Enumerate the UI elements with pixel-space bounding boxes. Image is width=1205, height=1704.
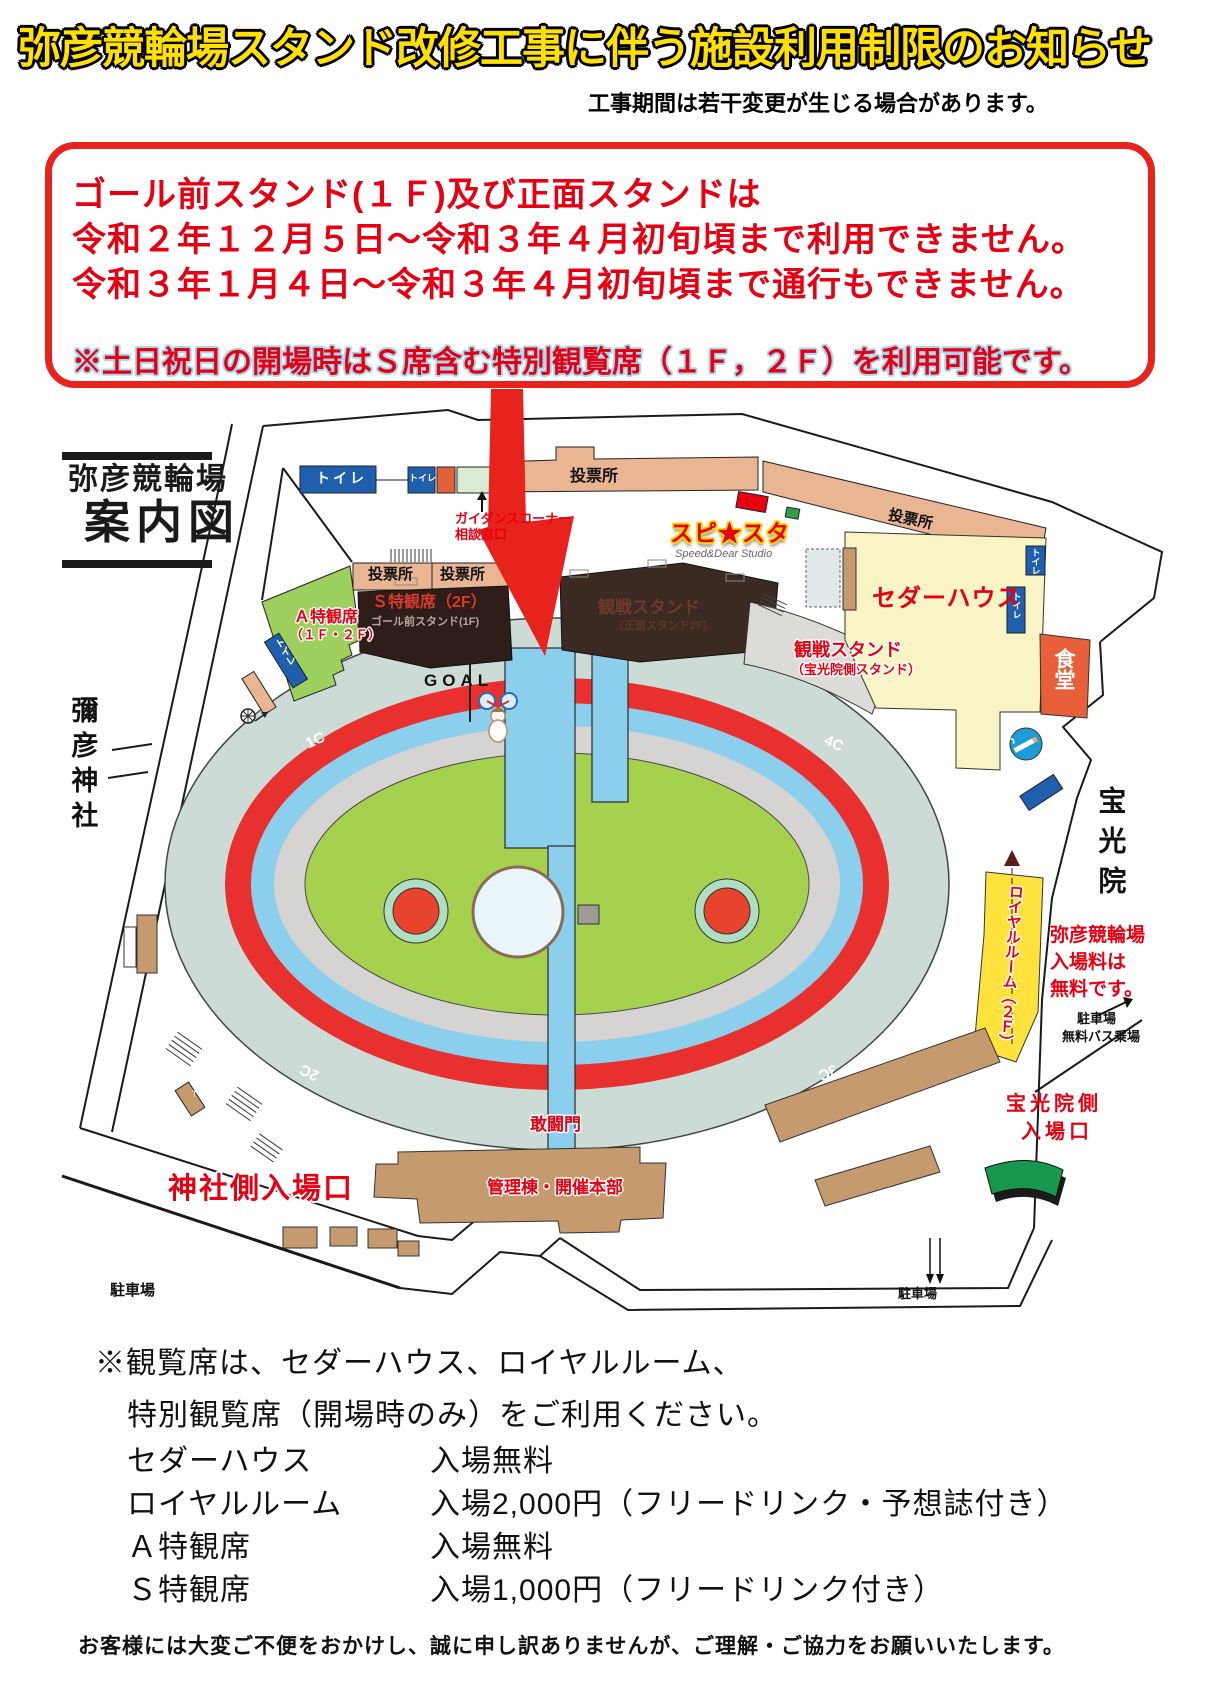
page-subtitle: 工事期間は若干変更が生じる場合があります。: [588, 86, 1048, 118]
service-building-mid: [815, 1146, 940, 1206]
shrine-entrance-label: 神社側入場口: [168, 1174, 354, 1204]
price-row-name: セダーハウス: [127, 1436, 312, 1480]
guidance-arrow: [477, 491, 487, 512]
stairs: [391, 549, 431, 562]
toilet-label-4: トイレ: [1011, 592, 1020, 619]
price-row-value: 入場1,000円（フリードリンク付き）: [430, 1565, 944, 1609]
a-seat-label: Ａ特観席: [294, 610, 358, 627]
price-row-name: Ａ特観席: [127, 1522, 251, 1566]
parking-label-right: 駐車場: [898, 1287, 937, 1301]
kanto-gate-label: 敢闘門: [530, 1116, 581, 1134]
page-title: 弥彦競輪場スタンド改修工事に伴う施設利用制限のお知らせ: [18, 14, 1194, 76]
info-heading-2: 特別観覧席（開場時のみ）をご利用ください。: [127, 1390, 778, 1434]
smoking-area-icon: [1009, 728, 1042, 760]
admission-label-2: 入場料は: [1050, 953, 1126, 973]
hokoin-entrance-label-1: 宝光院側: [1006, 1094, 1102, 1115]
admission-label-1: 弥彦競輪場: [1050, 926, 1145, 946]
price-row-value: 入場2,000円（フリードリンク・予想誌付き）: [430, 1479, 1067, 1523]
voting-office-label-2: 投票所: [368, 567, 413, 583]
goal-label: GOAL: [424, 672, 493, 690]
toilet-label-2: トイレ: [409, 474, 436, 483]
studio-logo: スピ★スタ: [670, 521, 790, 545]
map-title-line2: 案内図: [84, 498, 240, 546]
parking-arrows: [926, 1238, 944, 1284]
s-seat-sublabel: ゴール前スタンド(1F): [371, 617, 479, 629]
guidance-label-2: 相談窓口: [455, 528, 507, 542]
parking-label-left: 駐車場: [110, 1283, 155, 1299]
apology-text: お客様には大変ご不便をおかけし、誠に申し訳ありませんが、ご理解・ご協力をお願いい…: [78, 1630, 1065, 1660]
price-row-value: 入場無料: [430, 1522, 554, 1566]
reception-strip: [242, 671, 276, 714]
notice-line-1: ゴール前スタンド(１Ｆ)及び正面スタンドは: [72, 167, 762, 216]
toilet-building-6: [1020, 774, 1063, 810]
price-row-name: ロイヤルルーム: [127, 1479, 342, 1523]
a-seat-sublabel: （１Ｆ・２Ｆ）: [290, 628, 381, 642]
hokoin-stand-sublabel: （宝光院側スタンド）: [791, 663, 921, 677]
map-title-line1: 弥彦競輪場: [68, 464, 228, 496]
voting-office-label-1: 投票所: [570, 469, 618, 486]
main-stand-label: 観戦スタンド: [598, 599, 700, 617]
admin-building-label: 管理棟・開催本部: [487, 1179, 623, 1197]
restriction-notice-box: ゴール前スタンド(１Ｆ)及び正面スタンドは 令和２年１２月５日～令和３年４月初旬…: [45, 142, 1155, 388]
infield-circle-right: [695, 879, 759, 943]
hokoin-temple-label: 宝光院: [1096, 786, 1125, 906]
main-stand-sublabel: （正面スタンド2F）: [613, 621, 714, 633]
notice-poster: 弥彦競輪場スタンド改修工事に伴う施設利用制限のお知らせ 工事期間は若干変更が生じ…: [0, 0, 1205, 1704]
cedar-house-label: セダーハウス: [872, 586, 1022, 611]
notice-line-2: 令和２年１２月５日～令和３年４月初旬頃まで利用できません。: [72, 212, 1086, 261]
infield-square: [578, 905, 599, 924]
price-row-name: Ｓ特観席: [127, 1565, 251, 1609]
studio-marker: [736, 492, 768, 513]
yahiko-shrine-label: 彌彦神社: [68, 696, 96, 836]
notice-line-3: 令和３年１月４日～令和３年４月初旬頃まで通行もできません。: [72, 257, 1085, 306]
voting-office-label-3: 投票所: [440, 567, 485, 583]
info-heading-1: ※観覧席は、セダーハウス、ロイヤルルーム、: [95, 1338, 744, 1382]
notice-note: ※土日祝日の開場時はＳ席含む特別観覧席（１Ｆ，２Ｆ）を利用可能です。: [72, 337, 1089, 381]
toilet-label-3: トイレ: [1030, 548, 1039, 575]
hokoin-stand-label: 観戦スタンド: [794, 641, 902, 660]
parking-bus-label-2: 無料バス乗場: [1062, 1030, 1140, 1044]
studio-logo-sub: Speed&Dear Studio: [675, 549, 772, 561]
toilet-label-1: トイレ: [316, 471, 367, 486]
guidance-label-1: ガイダンスコーナー: [455, 512, 571, 526]
voting-office-building-1: [497, 447, 758, 492]
s-seat-label: Ｓ特観席（2F）: [372, 595, 487, 612]
infield-pond: [473, 867, 563, 957]
dining-hall-label: 食堂: [1052, 648, 1074, 690]
parking-bus-label-1: 駐車場: [1077, 1012, 1116, 1026]
hokoin-entrance-label-2: 入場口: [1021, 1122, 1093, 1143]
price-row-value: 入場無料: [430, 1436, 554, 1480]
infield-circle-left: [384, 879, 448, 943]
admission-label-3: 無料です。: [1050, 980, 1143, 1000]
